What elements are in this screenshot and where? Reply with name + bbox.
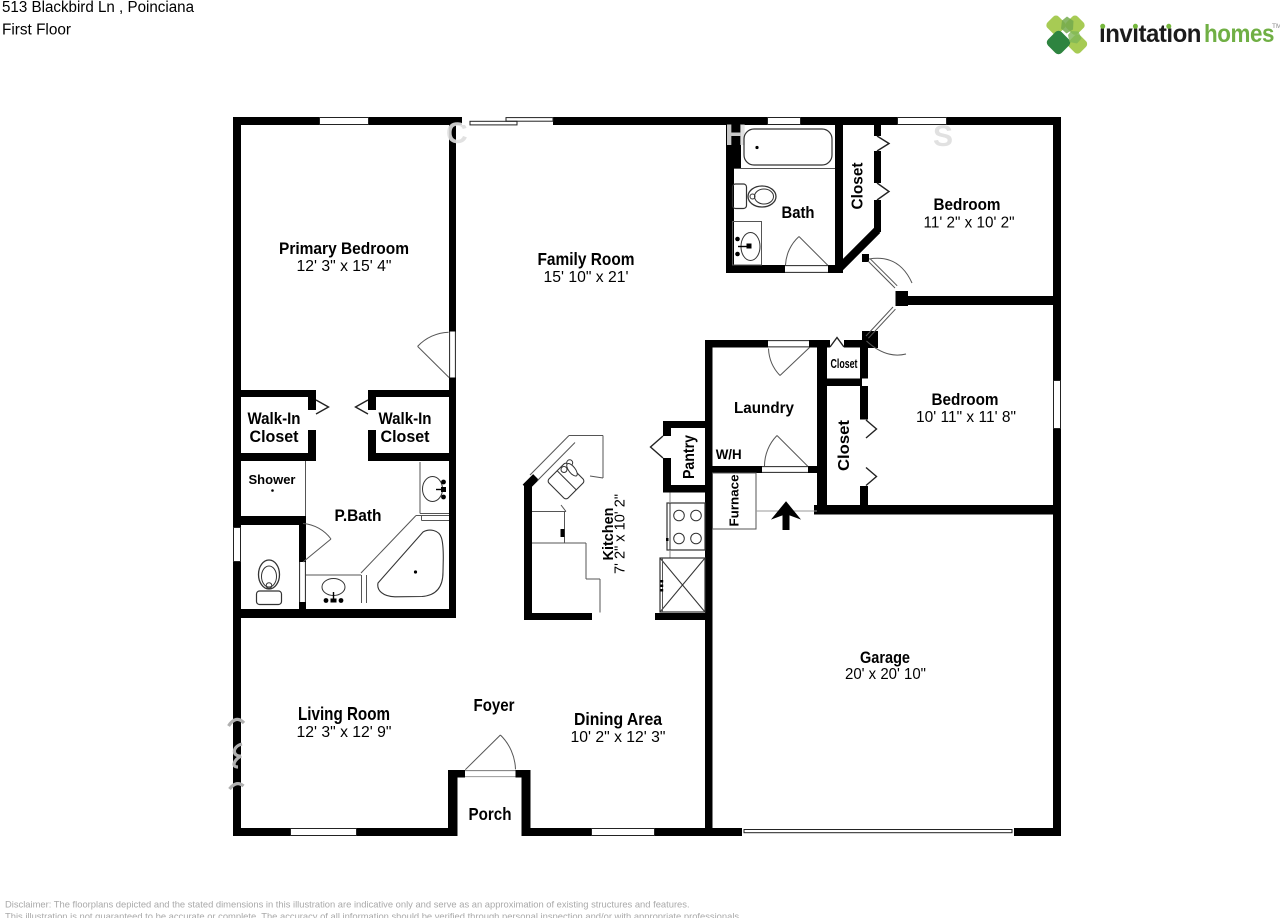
svg-text:Dining Area: Dining Area xyxy=(574,709,662,729)
svg-text:Family Room: Family Room xyxy=(538,249,635,269)
svg-text:Closet: Closet xyxy=(250,428,299,446)
svg-text:Garage: Garage xyxy=(860,648,910,667)
svg-text:Walk-In: Walk-In xyxy=(248,410,301,428)
svg-text:Bedroom: Bedroom xyxy=(932,390,999,409)
svg-text:513 Blackbird Ln , Poinciana: 513 Blackbird Ln , Poinciana xyxy=(2,0,194,16)
svg-text:12' 3" x 15' 4": 12' 3" x 15' 4" xyxy=(297,258,392,275)
svg-text:Closet: Closet xyxy=(836,419,853,471)
svg-text:Bedroom: Bedroom xyxy=(934,195,1001,214)
svg-text:15' 10" x 21': 15' 10" x 21' xyxy=(544,269,629,286)
svg-text:Disclaimer: The floorplans dep: Disclaimer: The floorplans depicted and … xyxy=(5,899,690,910)
svg-text:Foyer: Foyer xyxy=(474,695,515,715)
svg-text:First Floor: First Floor xyxy=(2,22,71,39)
svg-text:Closet: Closet xyxy=(850,162,867,210)
svg-text:20' x 20' 10": 20' x 20' 10" xyxy=(845,666,926,683)
svg-text:P.Bath: P.Bath xyxy=(335,507,382,525)
svg-text:W/H: W/H xyxy=(716,447,742,462)
svg-text:10' 11" x 11' 8": 10' 11" x 11' 8" xyxy=(916,409,1016,426)
svg-text:Closet: Closet xyxy=(831,356,858,371)
svg-text:Pantry: Pantry xyxy=(681,435,698,479)
svg-text:7' 2" x 10' 2": 7' 2" x 10' 2" xyxy=(612,494,629,574)
svg-text:Bath: Bath xyxy=(782,203,815,222)
svg-text:homes: homes xyxy=(1204,20,1274,48)
svg-text:Primary Bedroom: Primary Bedroom xyxy=(279,239,409,258)
svg-text:Living Room: Living Room xyxy=(298,704,390,724)
svg-text:ınvıtatıon: ınvıtatıon xyxy=(1099,20,1201,48)
svg-text:Shower: Shower xyxy=(249,472,296,487)
svg-text:Porch: Porch xyxy=(469,804,512,824)
svg-text:TM: TM xyxy=(1272,23,1280,30)
svg-text:This illustration is not guara: This illustration is not guaranteed to b… xyxy=(5,911,742,918)
svg-text:Laundry: Laundry xyxy=(734,400,794,417)
svg-text:11' 2" x 10' 2": 11' 2" x 10' 2" xyxy=(924,215,1015,232)
svg-text:Furnace: Furnace xyxy=(727,475,742,527)
svg-text:10' 2" x 12' 3": 10' 2" x 12' 3" xyxy=(571,729,666,746)
svg-text:Closet: Closet xyxy=(381,428,430,446)
svg-text:Walk-In: Walk-In xyxy=(379,410,432,428)
svg-text:12' 3" x 12' 9": 12' 3" x 12' 9" xyxy=(297,724,392,741)
